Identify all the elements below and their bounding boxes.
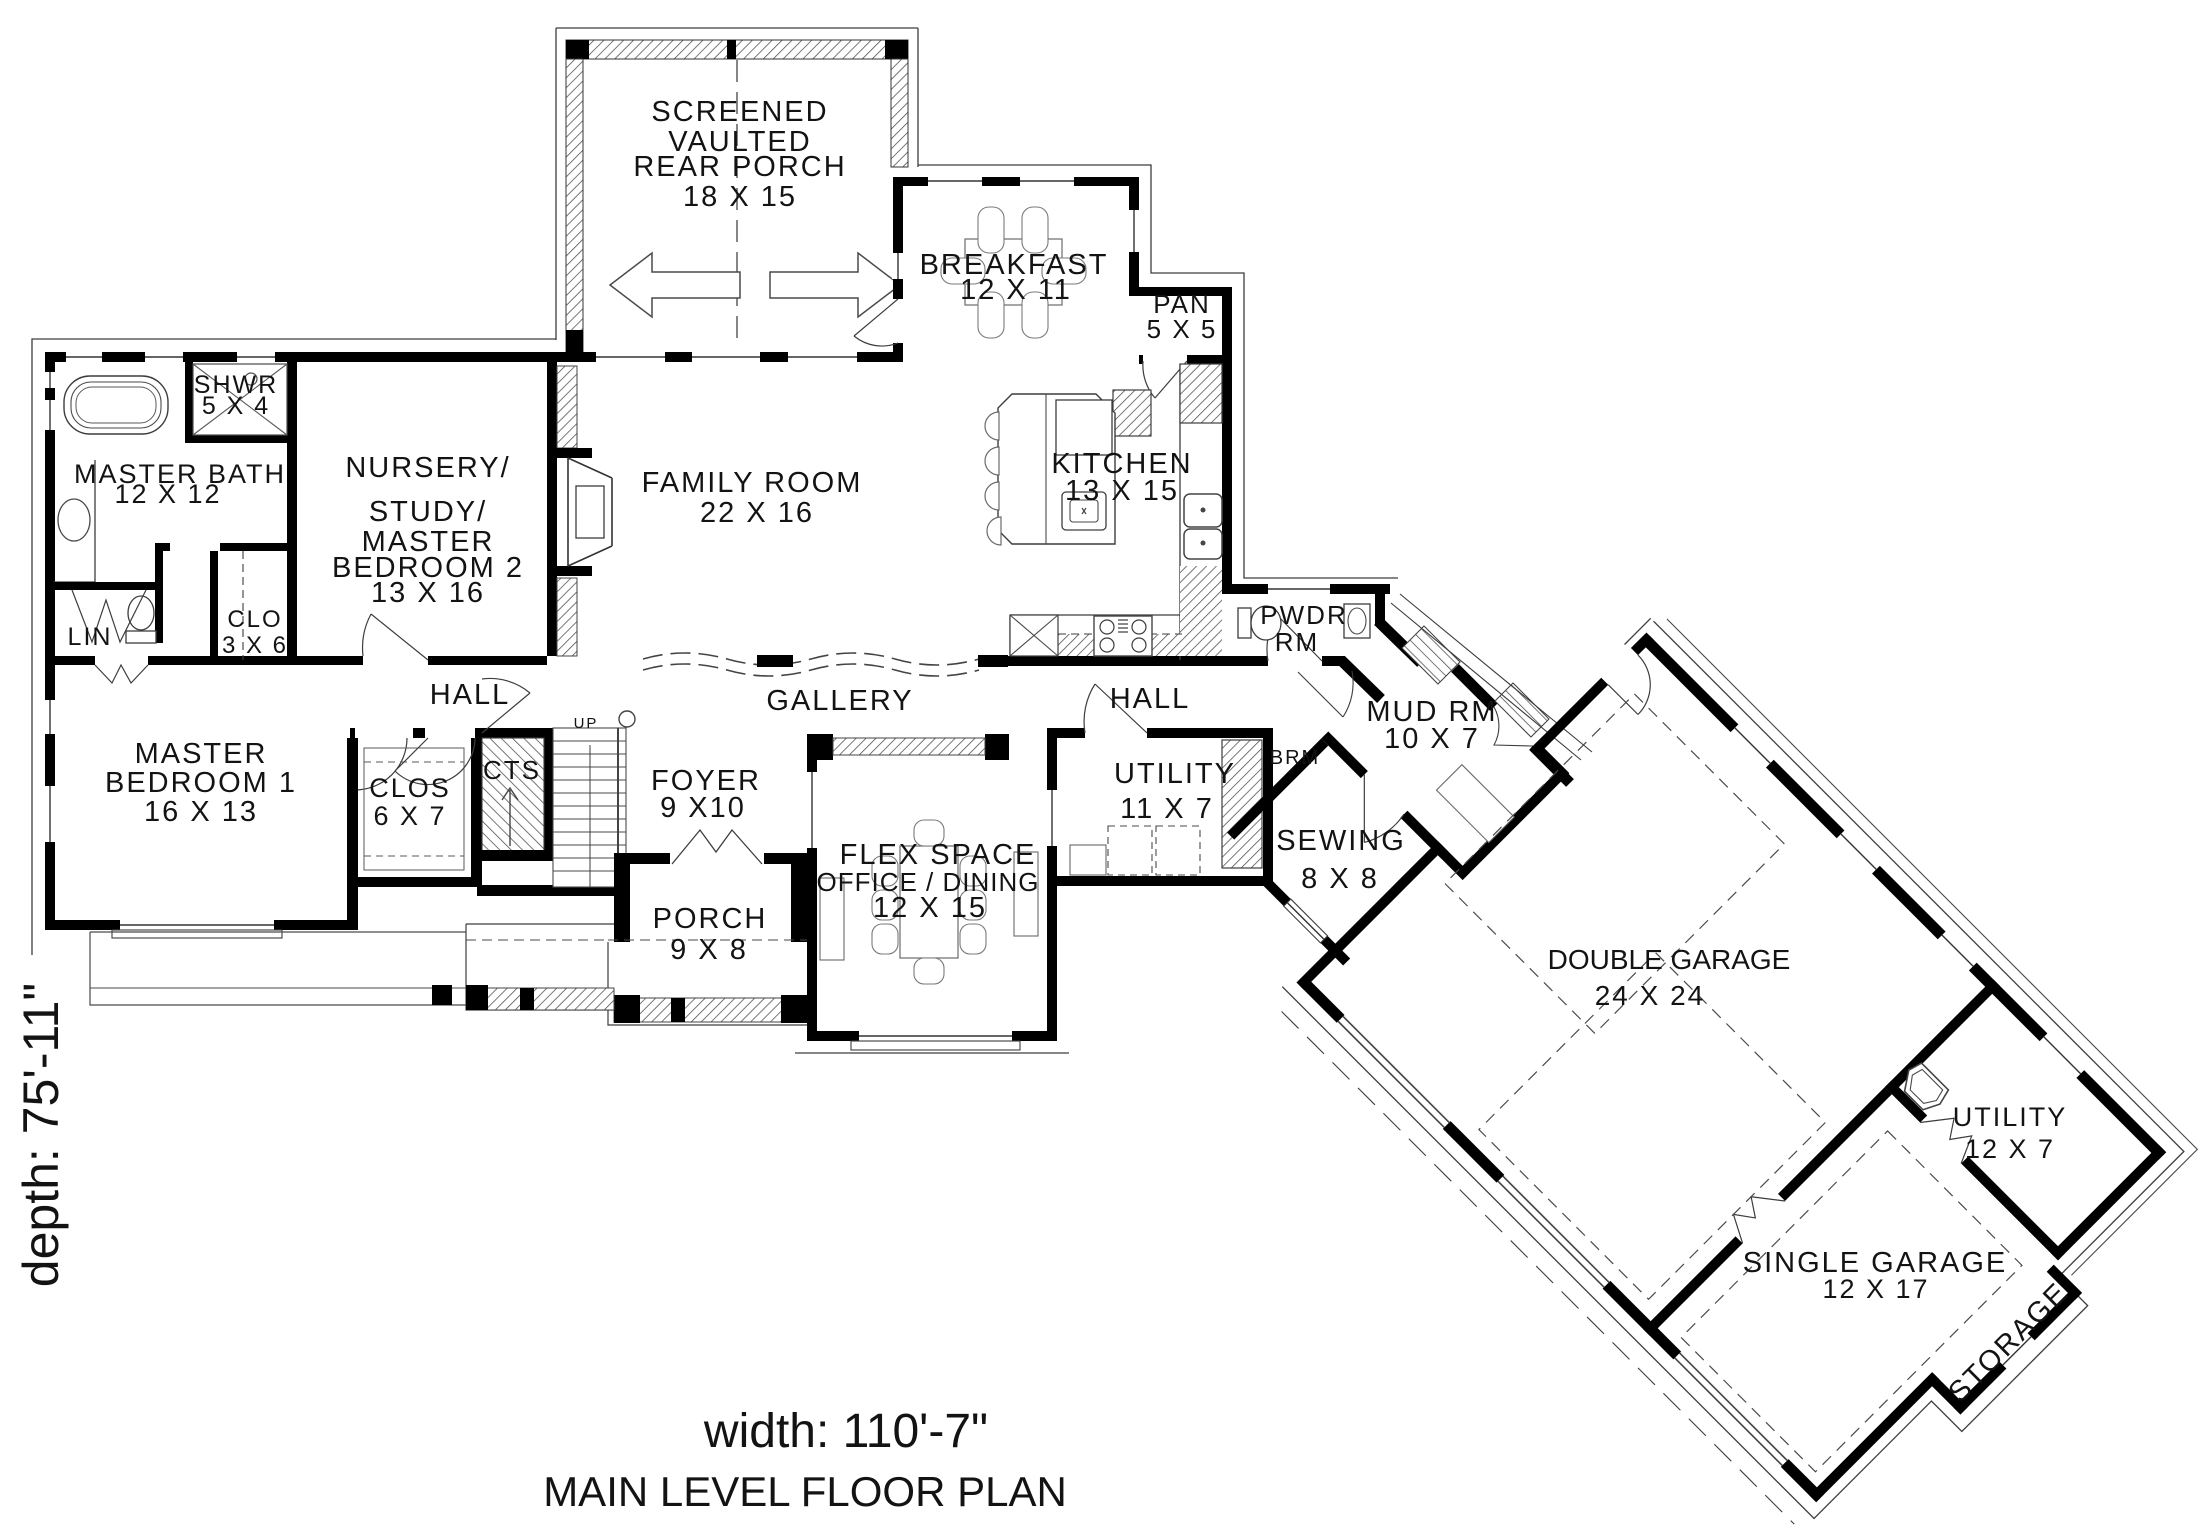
svg-text:11 X 7: 11 X 7 (1120, 793, 1214, 825)
svg-text:REAR PORCH: REAR PORCH (633, 151, 846, 183)
svg-text:16 X 13: 16 X 13 (144, 796, 258, 828)
svg-text:depth: 75'-11": depth: 75'-11" (13, 983, 69, 1287)
svg-text:GALLERY: GALLERY (766, 685, 913, 717)
svg-text:8 X 8: 8 X 8 (1301, 863, 1379, 895)
svg-text:CLO: CLO (227, 606, 282, 633)
svg-text:HALL: HALL (430, 679, 511, 711)
svg-text:width: 110'-7": width: 110'-7" (703, 1405, 988, 1458)
svg-text:UP: UP (574, 715, 599, 732)
svg-text:3 X 6: 3 X 6 (222, 632, 288, 659)
svg-text:BEDROOM 1: BEDROOM 1 (105, 767, 297, 799)
svg-text:5 X 5: 5 X 5 (1147, 314, 1218, 344)
svg-text:DOUBLE GARAGE: DOUBLE GARAGE (1548, 944, 1791, 975)
svg-text:LIN: LIN (68, 623, 113, 651)
svg-text:HALL: HALL (1110, 683, 1191, 715)
svg-text:9 X10: 9 X10 (660, 792, 746, 824)
svg-text:12 X 12: 12 X 12 (114, 479, 221, 509)
svg-text:22 X 16: 22 X 16 (700, 497, 814, 529)
svg-text:PWDR: PWDR (1260, 600, 1347, 630)
svg-text:FAMILY ROOM: FAMILY ROOM (642, 467, 863, 499)
svg-text:6 X 7: 6 X 7 (373, 801, 446, 831)
svg-text:CTS: CTS (483, 755, 541, 785)
svg-text:CLOS: CLOS (369, 773, 451, 803)
svg-text:NURSERY/: NURSERY/ (345, 452, 510, 484)
svg-text:SEWING: SEWING (1276, 825, 1406, 857)
svg-text:12 X 11: 12 X 11 (960, 274, 1072, 306)
svg-text:RM: RM (1275, 627, 1319, 657)
svg-text:MAIN LEVEL FLOOR PLAN: MAIN LEVEL FLOOR PLAN (543, 1468, 1067, 1515)
svg-text:STUDY/: STUDY/ (369, 496, 487, 528)
svg-text:10 X 7: 10 X 7 (1384, 723, 1480, 755)
svg-text:SCREENED: SCREENED (651, 96, 828, 128)
svg-text:MASTER: MASTER (135, 738, 268, 770)
svg-text:12 X 7: 12 X 7 (1965, 1134, 2055, 1164)
svg-text:24 X 24: 24 X 24 (1595, 980, 1706, 1011)
svg-text:9 X 8: 9 X 8 (670, 934, 748, 966)
svg-text:UTILITY: UTILITY (1114, 758, 1236, 790)
svg-text:PORCH: PORCH (653, 903, 768, 935)
svg-text:12 X 17: 12 X 17 (1822, 1274, 1929, 1304)
svg-text:12 X 15: 12 X 15 (873, 892, 987, 924)
svg-text:18 X 15: 18 X 15 (683, 181, 797, 213)
svg-text:BRM: BRM (1270, 747, 1320, 769)
svg-text:UTILITY: UTILITY (1953, 1102, 2068, 1132)
svg-text:13 X 16: 13 X 16 (371, 577, 485, 609)
svg-text:5 X 4: 5 X 4 (202, 392, 270, 420)
svg-text:13 X 15: 13 X 15 (1065, 475, 1179, 507)
